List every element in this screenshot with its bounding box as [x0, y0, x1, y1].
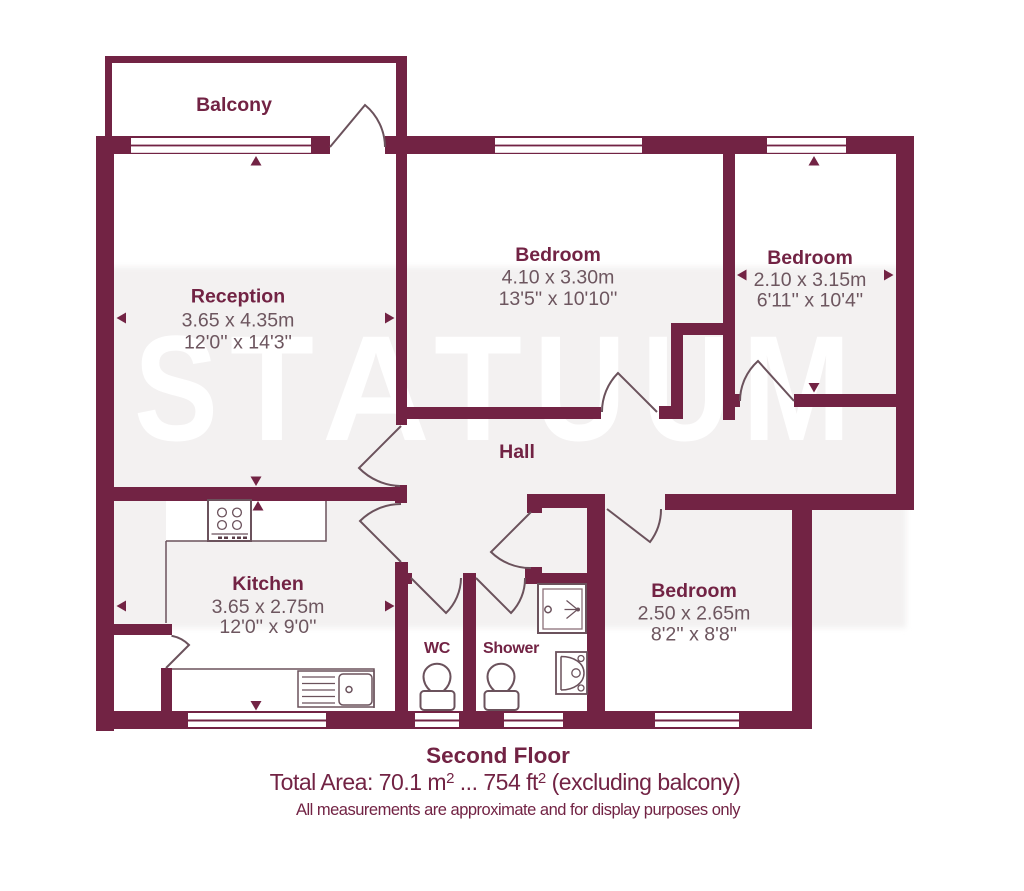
svg-text:Balcony: Balcony — [196, 94, 272, 116]
svg-text:Second Floor: Second Floor — [426, 743, 570, 768]
svg-text:4.10 x 3.30m: 4.10 x 3.30m — [502, 267, 615, 289]
svg-text:Bedroom: Bedroom — [767, 247, 853, 269]
svg-text:Bedroom: Bedroom — [651, 580, 737, 602]
svg-text:3.65 x 4.35m: 3.65 x 4.35m — [182, 310, 295, 332]
svg-text:Kitchen: Kitchen — [232, 573, 304, 595]
svg-text:3.65 x 2.75m: 3.65 x 2.75m — [212, 596, 325, 618]
svg-text:WC: WC — [424, 640, 451, 657]
svg-text:U: U — [534, 304, 626, 472]
svg-text:Bedroom: Bedroom — [515, 244, 601, 266]
svg-text:2.10 x 3.15m: 2.10 x 3.15m — [754, 269, 867, 291]
svg-text:A: A — [322, 304, 430, 472]
svg-text:12'0'' x 14'3'': 12'0'' x 14'3'' — [184, 332, 292, 354]
svg-text:6'11'' x 10'4'': 6'11'' x 10'4'' — [757, 290, 864, 312]
svg-text:Hall: Hall — [499, 441, 535, 463]
svg-text:13'5'' x 10'10'': 13'5'' x 10'10'' — [499, 288, 618, 310]
svg-text:2.50 x 2.65m: 2.50 x 2.65m — [638, 603, 751, 625]
svg-text:Reception: Reception — [191, 286, 285, 308]
svg-text:12'0'' x 9'0'': 12'0'' x 9'0'' — [219, 616, 316, 638]
svg-text:Total Area: 70.1 m2 ... 754 ft: Total Area: 70.1 m2 ... 754 ft2 (excludi… — [270, 769, 741, 795]
svg-text:8'2'' x 8'8'': 8'2'' x 8'8'' — [651, 624, 737, 646]
svg-text:All measurements are approxima: All measurements are approximate and for… — [296, 801, 741, 819]
svg-text:Shower: Shower — [483, 640, 539, 657]
svg-text:M: M — [742, 304, 851, 472]
